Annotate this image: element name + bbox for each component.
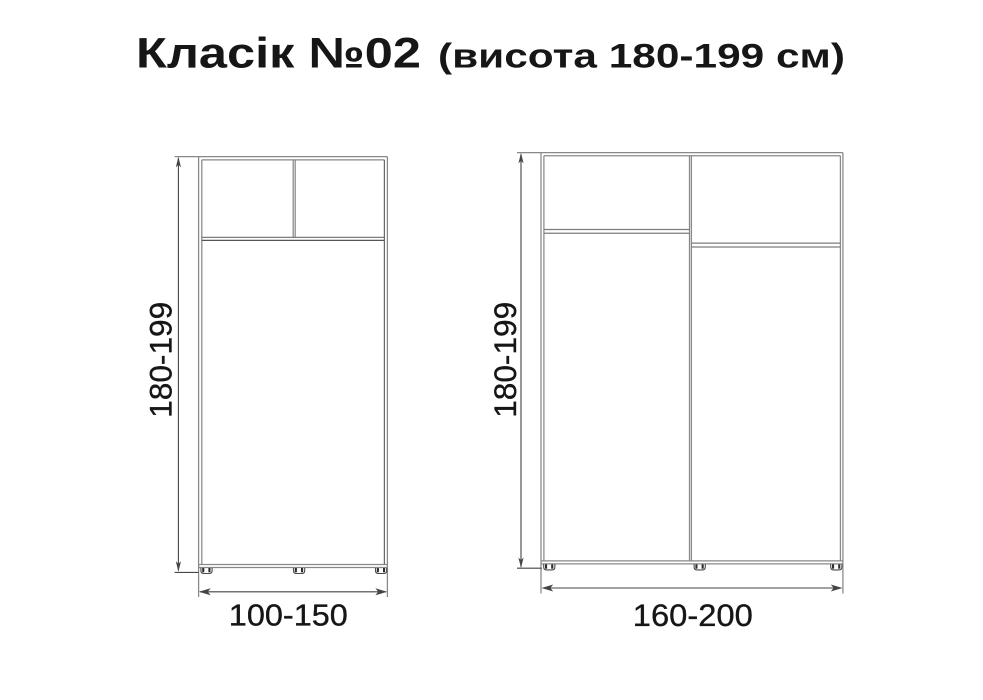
svg-text:180-199: 180-199 [143, 302, 179, 418]
svg-text:180-199: 180-199 [487, 302, 523, 418]
svg-text:160-200: 160-200 [633, 597, 753, 633]
svg-text:Класік №02: Класік №02 [136, 30, 421, 78]
svg-text:100-150: 100-150 [229, 598, 348, 633]
svg-text:(висота 180-199 см): (висота 180-199 см) [438, 38, 845, 76]
